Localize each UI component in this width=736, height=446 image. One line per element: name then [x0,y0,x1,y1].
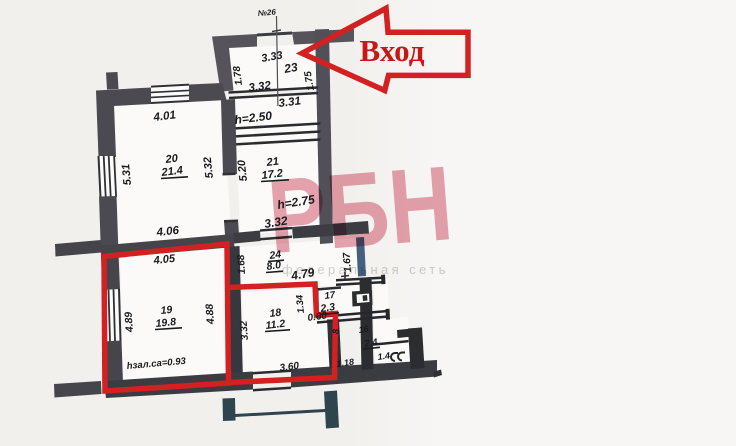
svg-text:1.67: 1.67 [342,252,354,273]
svg-text:19: 19 [160,304,173,317]
svg-text:1.34: 1.34 [294,294,307,314]
svg-text:4.05: 4.05 [152,253,176,267]
svg-text:23: 23 [282,60,299,76]
svg-text:4.06: 4.06 [155,225,180,239]
svg-text:8: 8 [331,329,341,334]
svg-text:20: 20 [164,152,179,166]
svg-text:№26: №26 [257,7,276,18]
svg-text:4.89: 4.89 [123,311,136,333]
svg-text:4.88: 4.88 [204,303,217,325]
svg-text:5.31: 5.31 [120,163,134,185]
svg-text:Вход: Вход [360,33,425,68]
svg-text:3.32: 3.32 [239,320,251,341]
svg-text:1.4: 1.4 [377,350,391,362]
svg-text:5.32: 5.32 [202,156,216,179]
svg-text:1.68: 1.68 [236,254,248,274]
svg-text:5.20: 5.20 [236,159,250,182]
